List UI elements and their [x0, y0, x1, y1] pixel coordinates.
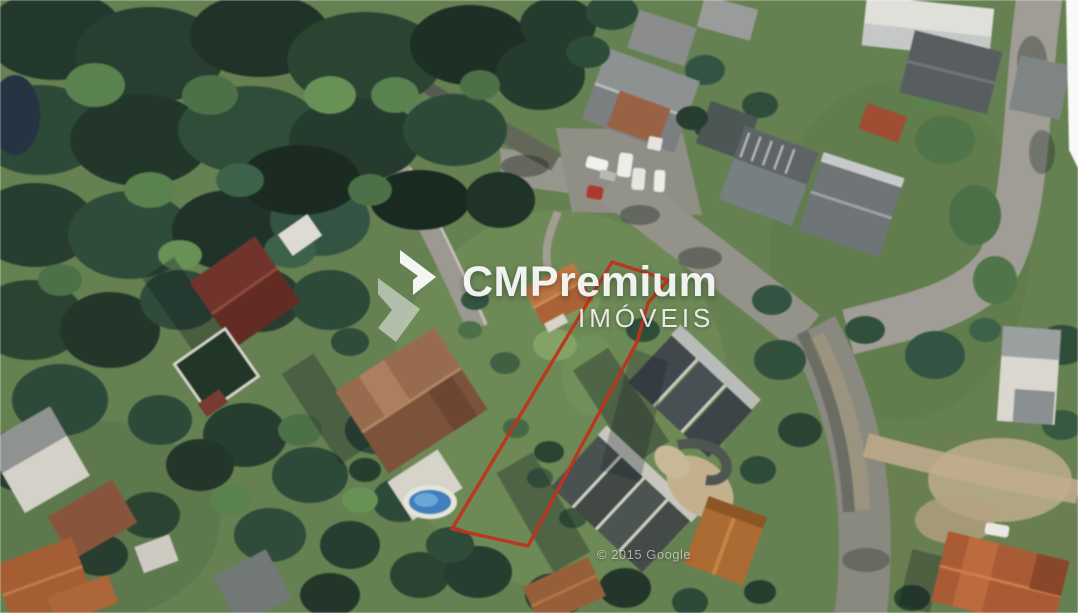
- watermark-text: CMPremium IMÓVEIS: [462, 250, 717, 334]
- map-attribution: © 2015 Google: [597, 547, 691, 562]
- brand-subtitle: IMÓVEIS: [462, 303, 717, 334]
- listing-map-screenshot: CMPremium IMÓVEIS © 2015 Google: [0, 0, 1078, 613]
- brand-logo-icon: [376, 250, 460, 346]
- watermark: CMPremium IMÓVEIS: [376, 250, 717, 346]
